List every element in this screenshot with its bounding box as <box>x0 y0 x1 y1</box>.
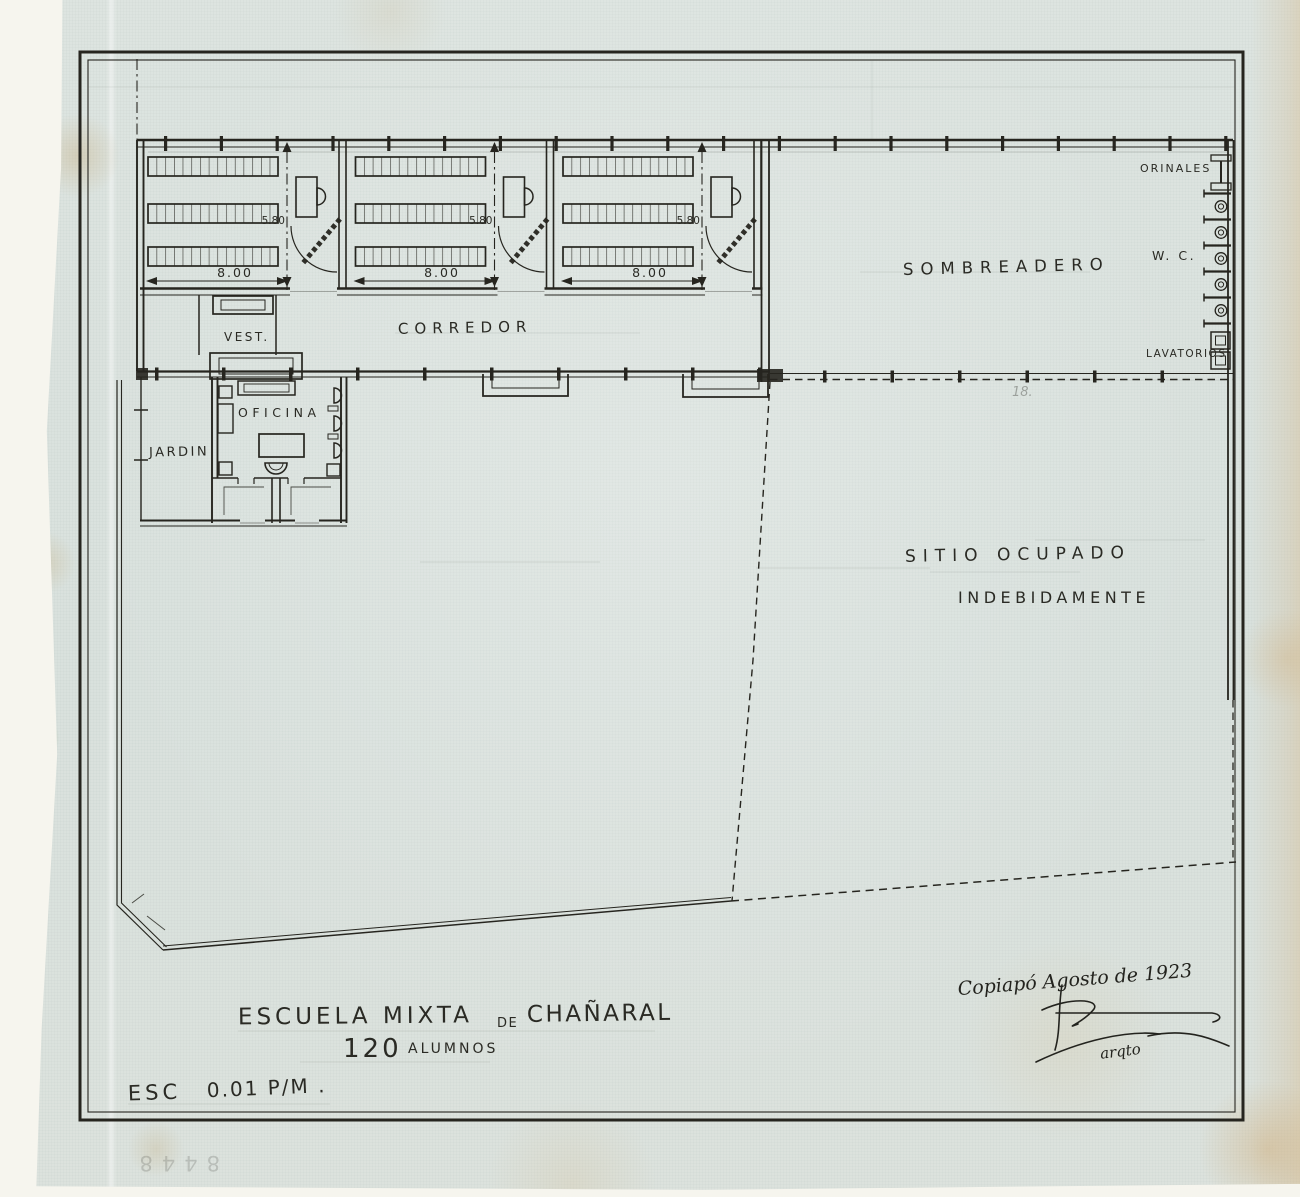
title-block: ESCUELA MIXTA DE CHAÑARAL 120 ALUMNOS ES… <box>128 998 673 1106</box>
parcel-note: 18. <box>1012 385 1033 400</box>
scale-value: 0.01 P/M . <box>206 1073 327 1102</box>
office-furniture <box>218 381 304 475</box>
classroom-2-depth: 5.80 <box>469 215 492 227</box>
date-note: Copiapó Agosto de 1923 <box>957 960 1193 1000</box>
wc-stalls <box>1204 190 1231 328</box>
classroom-block-east-wall <box>762 140 770 382</box>
occupied-site-dashed-limit <box>731 380 1236 902</box>
classroom-3-depth: 5.80 <box>677 215 700 227</box>
plan-title-connector: DE <box>497 1016 518 1031</box>
label-oficina: OFICINA <box>238 405 321 420</box>
office-wall-fixtures <box>327 388 342 476</box>
site-boundary <box>117 59 731 950</box>
classroom-2-width: 8.00 <box>424 265 460 280</box>
plan-title-place: CHAÑARAL <box>527 998 673 1028</box>
students-word: ALUMNOS <box>408 1041 498 1057</box>
label-sitio-ocupado-2: INDEBIDAMENTE <box>958 588 1150 607</box>
label-lavatorios: LAVATORIOS <box>1146 348 1226 360</box>
classroom-1-depth: 5.80 <box>262 215 285 227</box>
plan-title: ESCUELA MIXTA <box>238 1002 473 1030</box>
classroom-3-width: 8.00 <box>632 265 668 280</box>
label-corredor: CORREDOR <box>398 318 533 338</box>
label-jardin: JARDIN <box>148 444 209 460</box>
label-sitio-ocupado-1: SITIO OCUPADO <box>905 543 1131 567</box>
classroom-1-width: 8.00 <box>217 265 253 280</box>
students-count: 120 <box>343 1034 402 1064</box>
west-wall <box>137 140 144 371</box>
scale-word: ESC <box>128 1080 182 1106</box>
label-wc: W. C. <box>1152 248 1196 263</box>
archive-number: 8448 <box>131 1151 220 1175</box>
label-orinales: ORINALES <box>1140 162 1211 175</box>
signature-role: arqto <box>1099 1040 1142 1063</box>
label-vestibule: VEST. <box>224 330 270 344</box>
corridor <box>136 368 783 397</box>
sanitary-wall <box>1204 140 1234 700</box>
north-wall <box>137 140 1233 152</box>
label-sombreadero: SOMBREADERO <box>903 255 1110 279</box>
signature-block: Copiapó Agosto de 1923 arqto <box>957 960 1229 1063</box>
scanned-plan-sheet: CORREDOR VEST. OFICINA JARDIN SOMBREADER… <box>0 0 1300 1197</box>
sombreadero-colonnade <box>770 374 1233 377</box>
garden-fence <box>134 377 148 521</box>
floor-plan-drawing: CORREDOR VEST. OFICINA JARDIN SOMBREADER… <box>0 0 1300 1197</box>
